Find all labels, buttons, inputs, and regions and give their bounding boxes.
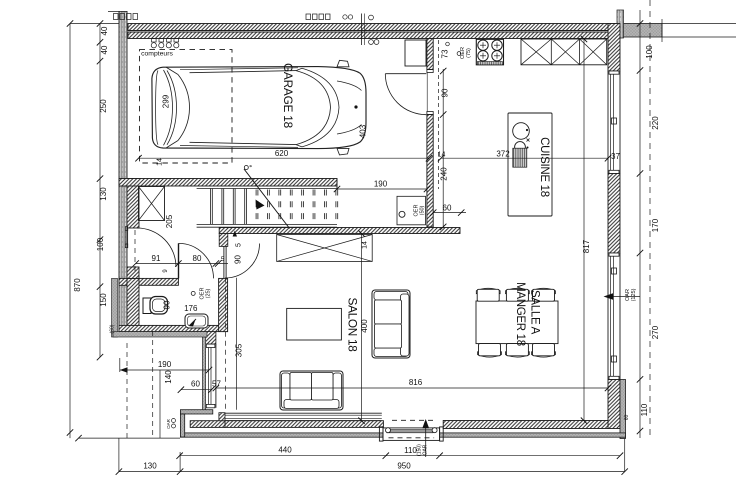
- svg-text:170: 170: [651, 218, 660, 232]
- svg-text:130: 130: [143, 462, 157, 471]
- svg-text:176: 176: [184, 304, 198, 313]
- svg-text:870: 870: [73, 278, 82, 292]
- svg-text:220: 220: [651, 116, 660, 130]
- svg-text:37: 37: [611, 152, 620, 161]
- svg-text:400: 400: [360, 319, 369, 333]
- svg-text:14: 14: [438, 152, 446, 159]
- svg-text:91: 91: [152, 254, 161, 263]
- svg-text:compteurs: compteurs: [141, 51, 173, 58]
- svg-text:60: 60: [191, 380, 200, 389]
- svg-text:100: 100: [645, 45, 654, 59]
- svg-text:40: 40: [100, 26, 109, 35]
- svg-text:(60): (60): [110, 324, 116, 333]
- svg-text:OAR: OAR: [166, 418, 171, 429]
- svg-text:(125): (125): [631, 288, 637, 301]
- svg-text:130: 130: [99, 187, 108, 201]
- svg-text:SALLE A: SALLE A: [529, 290, 541, 335]
- svg-text:14: 14: [362, 241, 369, 249]
- svg-text:(50): (50): [420, 205, 426, 215]
- svg-text:90: 90: [163, 300, 172, 309]
- svg-text:299: 299: [162, 94, 171, 108]
- svg-text:403: 403: [359, 124, 368, 138]
- svg-text:140: 140: [164, 370, 173, 384]
- svg-text:MANGER 18: MANGER 18: [514, 282, 526, 346]
- svg-text:190: 190: [374, 179, 388, 188]
- svg-text:150: 150: [99, 293, 108, 307]
- svg-text:110: 110: [640, 403, 649, 416]
- svg-text:250: 250: [99, 99, 108, 113]
- svg-text:(75): (75): [466, 48, 472, 58]
- svg-text:CUISINE 18: CUISINE 18: [538, 137, 550, 197]
- svg-text:305: 305: [235, 343, 244, 357]
- svg-text:190: 190: [158, 360, 172, 369]
- svg-text:73: 73: [441, 49, 450, 58]
- svg-text:60: 60: [443, 204, 452, 213]
- svg-text:817: 817: [582, 239, 591, 253]
- svg-text:OAR: OAR: [423, 444, 429, 455]
- svg-text:205: 205: [165, 214, 174, 228]
- svg-text:240: 240: [440, 167, 449, 181]
- svg-text:950: 950: [397, 462, 411, 471]
- svg-text:90: 90: [441, 88, 450, 97]
- svg-text:5: 5: [221, 256, 225, 263]
- svg-text:60: 60: [624, 415, 630, 421]
- svg-text:GARAGE 18: GARAGE 18: [281, 63, 295, 129]
- svg-text:372: 372: [496, 150, 510, 159]
- svg-text:110: 110: [404, 446, 417, 455]
- svg-text:816: 816: [409, 378, 423, 387]
- svg-text:270: 270: [651, 325, 660, 339]
- svg-text:SALON 18: SALON 18: [346, 298, 360, 353]
- svg-text:80: 80: [193, 254, 202, 263]
- svg-text:57: 57: [212, 380, 221, 389]
- svg-text:440: 440: [278, 446, 292, 455]
- svg-text:90: 90: [234, 255, 243, 264]
- svg-text:620: 620: [275, 149, 289, 158]
- svg-text:100: 100: [96, 237, 105, 251]
- svg-text:14: 14: [157, 158, 164, 166]
- svg-text:40: 40: [100, 45, 109, 54]
- svg-text:(25): (25): [206, 288, 212, 298]
- svg-text:5: 5: [236, 243, 243, 247]
